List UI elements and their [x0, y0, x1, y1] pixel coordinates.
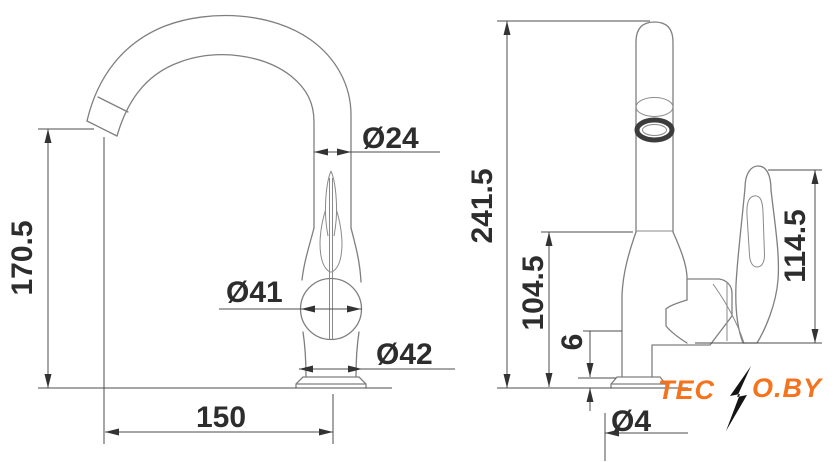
- arrowhead: [337, 149, 351, 156]
- side-body-left-edge: [622, 232, 636, 377]
- side-lever-left-edge: [736, 188, 745, 343]
- technical-drawing-canvas: 170.5 Ø24 Ø41 Ø42 150: [0, 0, 840, 462]
- side-lever-height-label: 114.5: [779, 209, 812, 282]
- front-spout-dia-label: Ø24: [362, 122, 419, 155]
- front-lever-blade: [325, 171, 336, 236]
- arrowhead: [812, 170, 819, 184]
- tecno-by-logo: TEC O.BY: [658, 366, 824, 431]
- side-lever-slot: [747, 196, 765, 267]
- side-body-height-label: 104.5: [517, 255, 550, 330]
- lightning-bolt-icon: [726, 366, 751, 431]
- arrowhead: [45, 129, 52, 143]
- side-body-right-edge: [673, 232, 687, 300]
- front-base-flange: [296, 377, 366, 388]
- front-lever-housing: [320, 210, 342, 272]
- front-handle-dia-label: Ø41: [226, 276, 283, 309]
- side-base-dia-label: Ø4: [611, 405, 651, 438]
- front-faucet-outline: [87, 16, 366, 388]
- front-spout-tip-band: [98, 97, 128, 112]
- front-height-label: 170.5: [6, 220, 39, 295]
- side-base-plate-label: 6: [556, 334, 589, 351]
- side-total-height-label: 241.5: [466, 168, 499, 243]
- front-lever-stem-lines: [330, 178, 333, 340]
- arrowhead: [347, 306, 361, 313]
- side-spout-section-rim: [636, 98, 673, 117]
- front-body-dia-label: Ø42: [376, 338, 433, 371]
- side-lever-top-cap: [745, 166, 771, 190]
- arrowhead: [504, 374, 511, 388]
- arrowhead: [504, 21, 511, 35]
- arrowhead: [587, 388, 594, 402]
- side-faucet-outline: [611, 22, 778, 388]
- front-spout-outer-edge: [87, 16, 351, 228]
- arrowhead: [348, 366, 362, 373]
- arrowhead: [546, 373, 553, 387]
- front-body-flare: [302, 228, 361, 282]
- arrowhead: [546, 232, 553, 246]
- front-view: 170.5 Ø24 Ø41 Ø42 150: [6, 16, 455, 444]
- arrowhead: [301, 306, 315, 313]
- front-reach-label: 150: [196, 401, 246, 434]
- front-dimensions: 170.5 Ø24 Ø41 Ø42 150: [6, 122, 455, 444]
- arrowhead: [314, 149, 328, 156]
- logo-text-tec: TEC: [658, 375, 715, 405]
- arrowhead: [105, 429, 119, 436]
- front-spout-inner-edge: [117, 55, 314, 228]
- arrowhead: [45, 374, 52, 388]
- arrowhead: [587, 363, 594, 377]
- logo-text-oby: O.BY: [752, 373, 824, 403]
- side-aerator-inner-rim: [643, 125, 667, 136]
- faucet-drawing-svg: 170.5 Ø24 Ø41 Ø42 150: [0, 0, 840, 462]
- arrowhead: [812, 329, 819, 343]
- side-body-notch: [666, 300, 687, 343]
- arrowhead: [319, 429, 333, 436]
- side-spout-capsule: [636, 22, 673, 232]
